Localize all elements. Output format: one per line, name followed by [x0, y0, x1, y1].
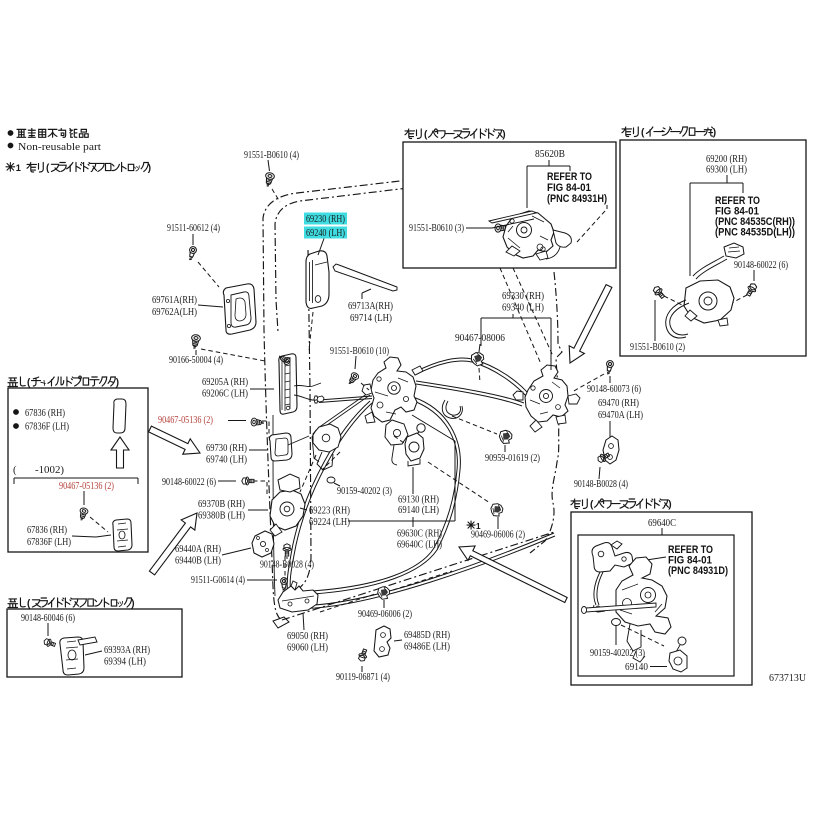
- svg-text:90148-60046 (6): 90148-60046 (6): [21, 613, 75, 624]
- svg-text:69330 (RH): 69330 (RH): [502, 291, 544, 302]
- svg-text:Non-reusable part: Non-reusable part: [18, 141, 101, 153]
- svg-text:69230 (RH): 69230 (RH): [306, 214, 345, 225]
- svg-text:69224 (LH): 69224 (LH): [309, 517, 350, 528]
- svg-text:91551-B0610 (4): 91551-B0610 (4): [244, 150, 299, 161]
- svg-text:): ): [668, 500, 671, 511]
- svg-text:69206C (LH): 69206C (LH): [202, 389, 248, 400]
- svg-text:67836F (LH): 67836F (LH): [25, 422, 69, 433]
- svg-text:1: 1: [16, 163, 21, 173]
- svg-text:(PNC 84931D): (PNC 84931D): [668, 565, 728, 577]
- svg-text:90159-40202 (3): 90159-40202 (3): [590, 648, 645, 659]
- svg-text:91511-G0614 (4): 91511-G0614 (4): [191, 575, 245, 586]
- svg-text:90148-60022 (6): 90148-60022 (6): [734, 260, 788, 271]
- svg-text:69380B (LH): 69380B (LH): [198, 511, 245, 522]
- svg-text:69394 (LH): 69394 (LH): [104, 657, 146, 668]
- svg-text:91551-B0610 (3): 91551-B0610 (3): [409, 223, 464, 234]
- svg-text:90148-B0028 (4): 90148-B0028 (4): [574, 479, 628, 490]
- svg-text:673713U: 673713U: [769, 672, 806, 684]
- svg-text:): ): [148, 163, 151, 174]
- svg-text:69740 (LH): 69740 (LH): [206, 455, 247, 466]
- svg-text:(PNC 84535D(LH)): (PNC 84535D(LH)): [715, 227, 795, 239]
- svg-text:): ): [713, 128, 716, 139]
- svg-text:69223 (RH): 69223 (RH): [309, 506, 350, 517]
- svg-text:90467-05136 (2): 90467-05136 (2): [59, 481, 114, 492]
- svg-text:69130 (RH): 69130 (RH): [398, 495, 439, 506]
- svg-text:69340 (LH): 69340 (LH): [502, 303, 544, 314]
- svg-text:69370B (RH): 69370B (RH): [198, 499, 245, 510]
- svg-text:69300 (LH): 69300 (LH): [706, 165, 747, 176]
- svg-text:69714 (LH): 69714 (LH): [350, 313, 392, 324]
- svg-text:69205A (RH): 69205A (RH): [202, 377, 248, 388]
- svg-text:90148-B0028 (4): 90148-B0028 (4): [260, 560, 314, 571]
- svg-text:69050 (RH): 69050 (RH): [287, 631, 328, 642]
- svg-text:90469-06006 (2): 90469-06006 (2): [471, 530, 525, 541]
- svg-text:90148-60073 (6): 90148-60073 (6): [587, 384, 641, 395]
- svg-text:91551-B0610 (10): 91551-B0610 (10): [330, 346, 389, 357]
- svg-text:): ): [131, 599, 134, 610]
- svg-text:69470A (LH): 69470A (LH): [598, 410, 643, 421]
- svg-text:69240 (LH): 69240 (LH): [306, 228, 345, 239]
- svg-text:69485D (RH): 69485D (RH): [404, 630, 450, 641]
- svg-text:69630C (RH): 69630C (RH): [397, 529, 442, 540]
- svg-text:67836F (LH): 67836F (LH): [27, 537, 71, 548]
- svg-text:91551-B0610 (2): 91551-B0610 (2): [630, 342, 685, 353]
- svg-text:69640C: 69640C: [648, 518, 676, 529]
- svg-text:69762A(LH): 69762A(LH): [152, 307, 197, 318]
- svg-text:(PNC 84931H): (PNC 84931H): [547, 193, 607, 205]
- svg-text:69060 (LH): 69060 (LH): [287, 643, 328, 654]
- svg-text:90959-01619 (2): 90959-01619 (2): [485, 453, 540, 464]
- svg-text:90467-08006: 90467-08006: [455, 333, 505, 344]
- svg-text:(: (: [13, 465, 17, 476]
- svg-text:90119-06871 (4): 90119-06871 (4): [336, 672, 390, 683]
- svg-text:69140: 69140: [625, 662, 648, 673]
- svg-text:90159-40202 (3): 90159-40202 (3): [337, 486, 392, 497]
- svg-text:69393A (RH): 69393A (RH): [104, 645, 150, 656]
- svg-text:69730 (RH): 69730 (RH): [206, 443, 247, 454]
- svg-text:69640C (LH): 69640C (LH): [397, 540, 442, 551]
- svg-text:69440B (LH): 69440B (LH): [175, 556, 221, 567]
- svg-text:69140 (LH): 69140 (LH): [398, 505, 439, 516]
- svg-text:90148-60022 (6): 90148-60022 (6): [162, 477, 216, 488]
- svg-text:69486E (LH): 69486E (LH): [404, 642, 450, 653]
- svg-text:-1002): -1002): [35, 465, 64, 476]
- svg-text:85620B: 85620B: [535, 149, 565, 160]
- svg-text:69200 (RH): 69200 (RH): [706, 154, 747, 165]
- svg-text:67836 (RH): 67836 (RH): [25, 408, 65, 419]
- svg-text:): ): [502, 130, 505, 141]
- svg-text:90469-06006 (2): 90469-06006 (2): [358, 609, 412, 620]
- svg-text:): ): [116, 378, 119, 389]
- svg-text:90467-05136 (2): 90467-05136 (2): [158, 415, 213, 426]
- svg-text:90166-50004 (4): 90166-50004 (4): [169, 355, 223, 366]
- svg-text:69761A(RH): 69761A(RH): [152, 295, 197, 306]
- svg-text:67836 (RH): 67836 (RH): [27, 525, 67, 536]
- svg-text:69440A (RH): 69440A (RH): [175, 544, 221, 555]
- svg-text:69470 (RH): 69470 (RH): [598, 398, 639, 409]
- svg-text:91511-60612 (4): 91511-60612 (4): [167, 223, 220, 234]
- svg-text:69713A(RH): 69713A(RH): [348, 301, 393, 312]
